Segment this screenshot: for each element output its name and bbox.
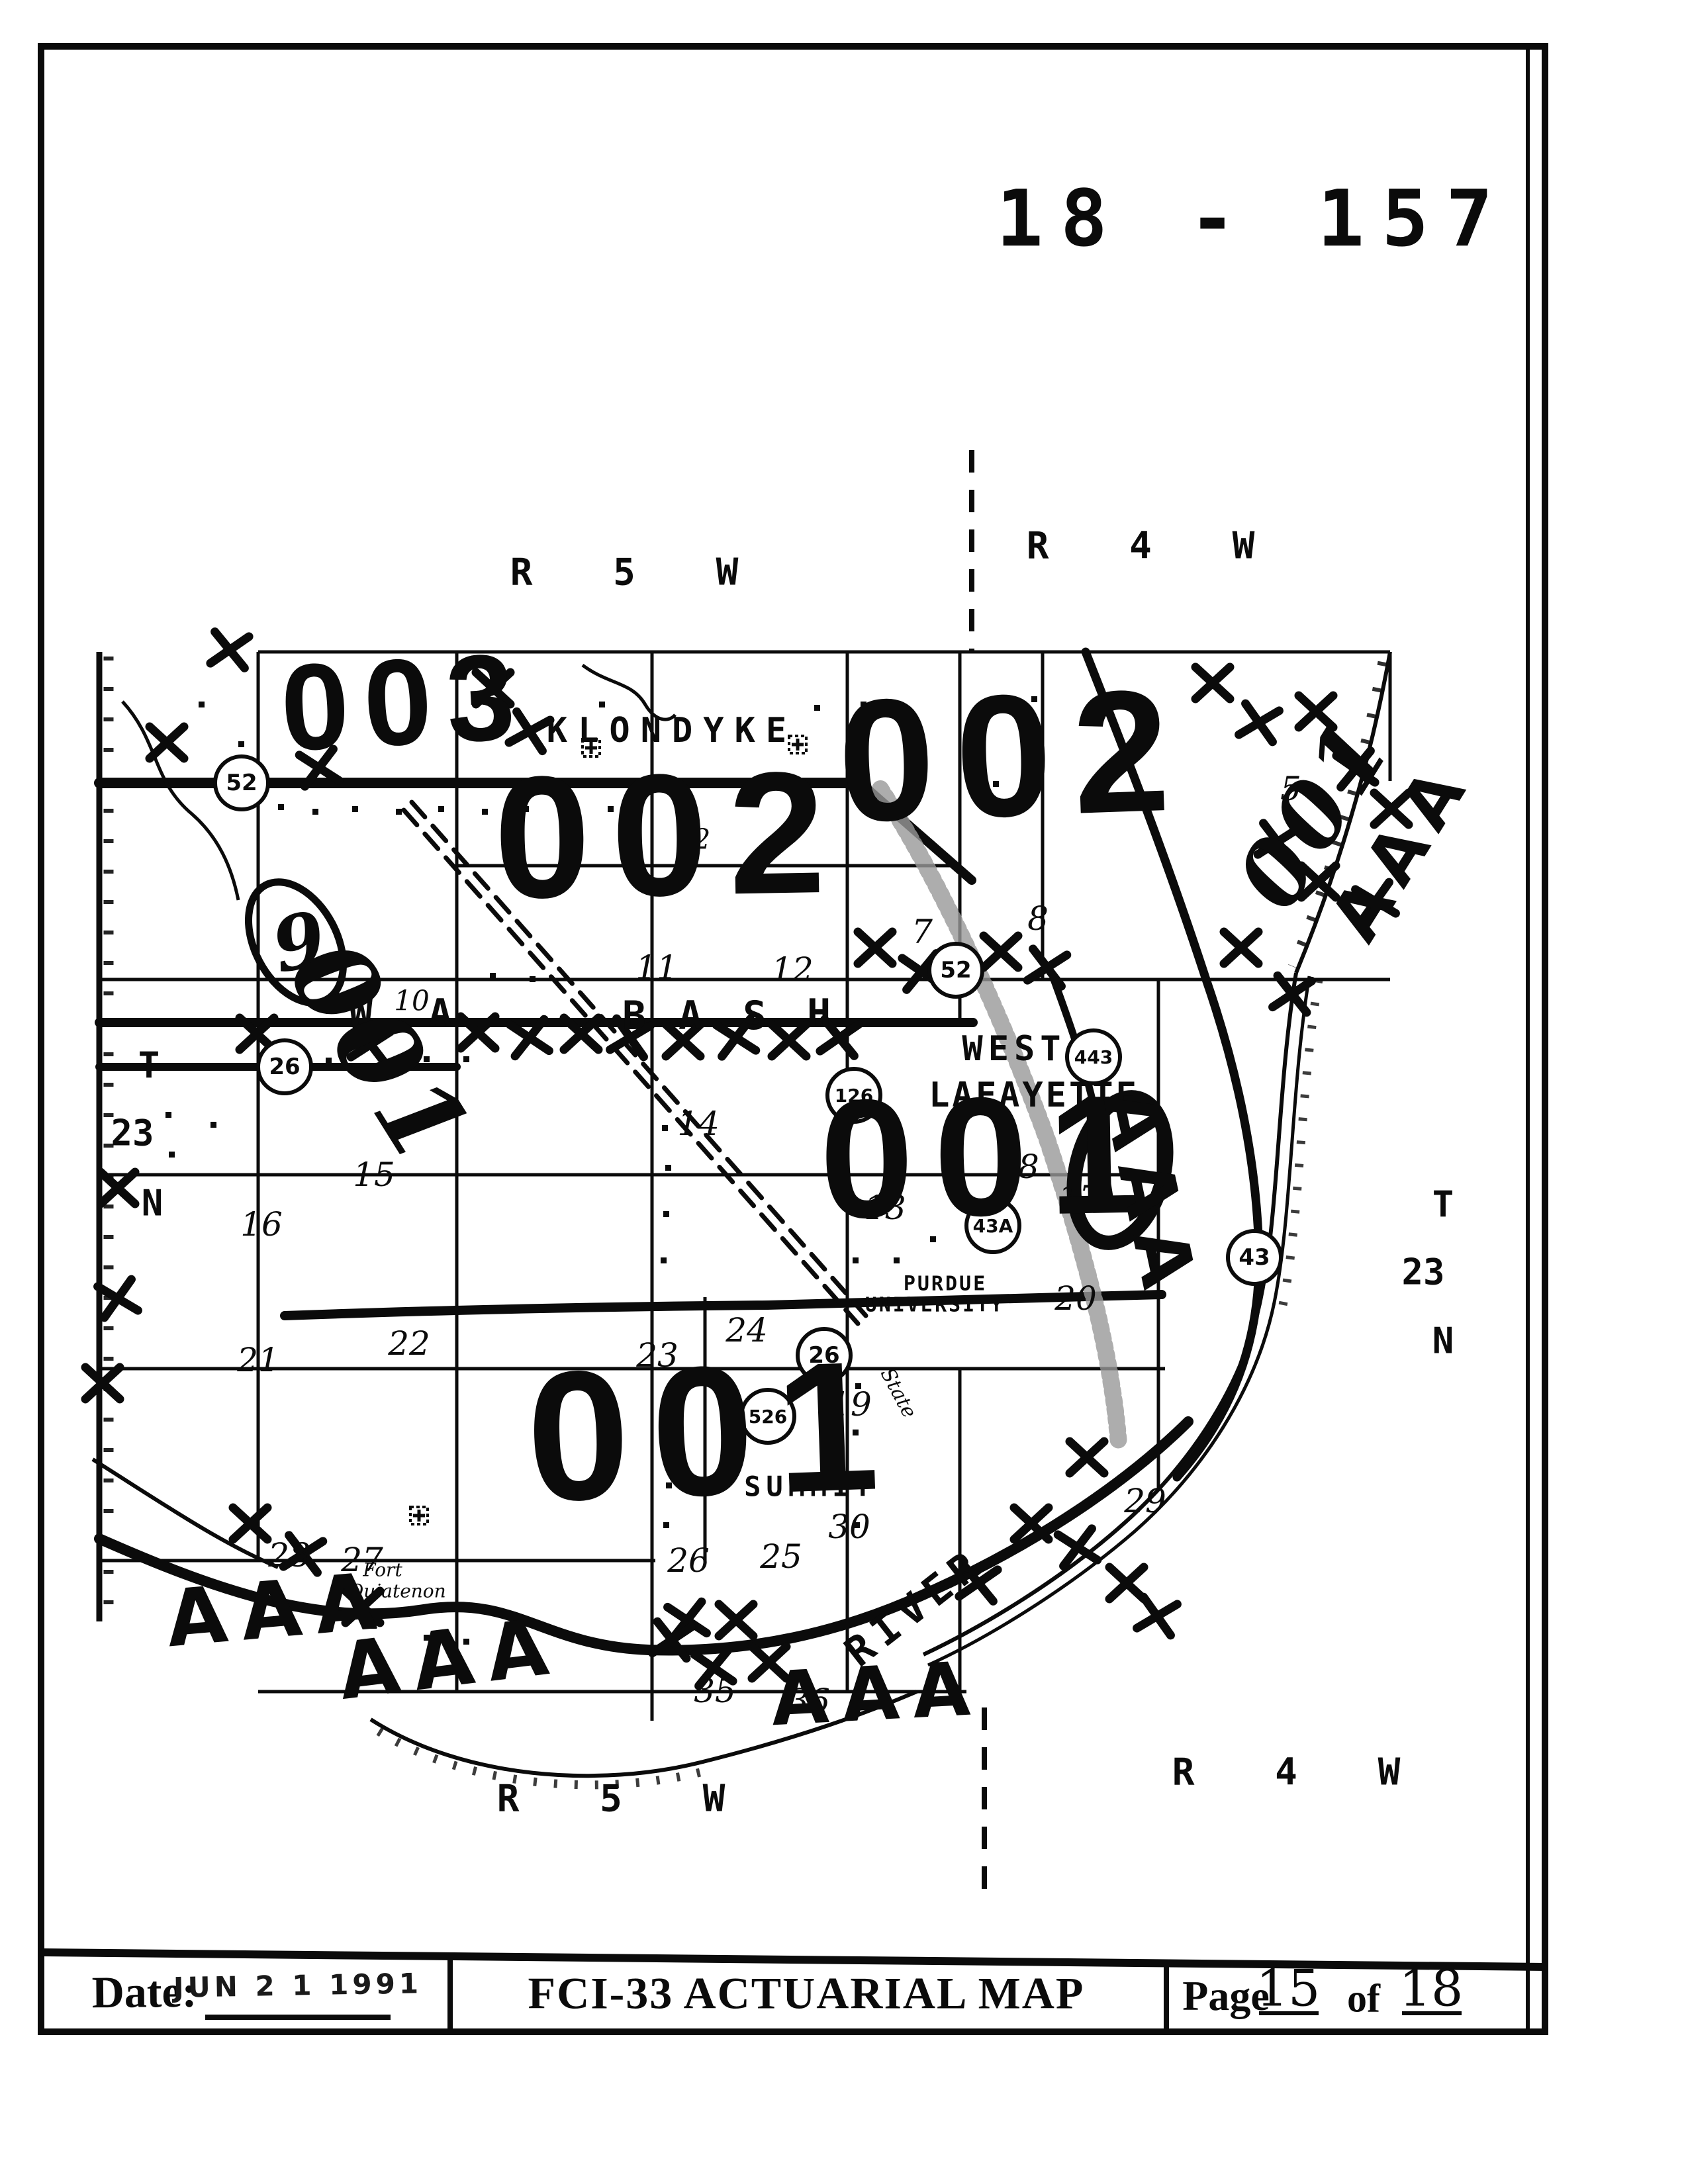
place-purdue: PURDUE <box>904 1273 987 1296</box>
place-university: UNIVERSITY <box>865 1294 1005 1317</box>
section-26: 26 <box>667 1541 710 1580</box>
township-left-t: T <box>138 1045 160 1087</box>
section-22: 22 <box>388 1324 430 1363</box>
section-20: 20 <box>1054 1279 1097 1318</box>
footer-title: FCI-33 ACTUARIAL MAP <box>528 1968 1085 2020</box>
route-shield-label: 43 <box>1239 1244 1270 1271</box>
section-12: 12 <box>771 950 814 989</box>
section-16: 16 <box>240 1205 283 1244</box>
actuarial-map-sheet: 18 - 157 R 5 W R 4 W R 5 W R 4 W T 23 N … <box>0 0 1684 2184</box>
township-right-n: N <box>1432 1320 1454 1362</box>
footer-date-stamp: JUN 2 1 1991 <box>173 1967 423 2004</box>
wabash-letter-a2: A <box>678 993 702 1039</box>
range-label-bottom-right: R 4 W <box>1172 1751 1430 1794</box>
wabash-letter-h: H <box>807 991 831 1037</box>
range-label-top-right: R 4 W <box>1027 525 1284 568</box>
section-29: 29 <box>1124 1482 1166 1520</box>
route-shield-label: 52 <box>226 770 257 796</box>
range-label-bottom-left: R 5 W <box>497 1778 755 1821</box>
wabash-letter-s: S <box>743 993 767 1039</box>
route-shield-label: 52 <box>940 957 971 983</box>
zone-stamp-002-northeast: 002 <box>835 663 1193 848</box>
township-left-23: 23 <box>111 1113 154 1154</box>
section-35: 35 <box>694 1672 736 1710</box>
footer-page-number: 15 <box>1256 1959 1321 2018</box>
range-label-top-left: R 5 W <box>510 551 768 594</box>
township-right-t: T <box>1432 1184 1454 1226</box>
section-7: 7 <box>912 913 933 951</box>
route-shield-sr43: 43 <box>1226 1229 1283 1286</box>
section-21: 21 <box>237 1341 279 1379</box>
section-8: 8 <box>1027 899 1049 938</box>
footer-total-pages: 18 <box>1399 1959 1464 2018</box>
section-25: 25 <box>760 1537 802 1576</box>
route-shield-us52-west: 52 <box>213 754 270 811</box>
section-11: 11 <box>635 948 678 987</box>
footer-of-label: of <box>1347 1976 1380 2022</box>
hand-aaa-southeast: AAA <box>769 1646 986 1743</box>
zone-stamp-001-south: 001 <box>524 1332 903 1529</box>
section-14: 14 <box>677 1105 720 1143</box>
route-shield-us52-east: 52 <box>927 942 984 999</box>
township-left-n: N <box>142 1183 164 1224</box>
route-shield-label: 26 <box>269 1054 300 1080</box>
wabash-letter-b: B <box>622 993 646 1039</box>
township-right-23: 23 <box>1401 1251 1444 1293</box>
map-number: 18 - 157 <box>996 173 1510 264</box>
zone-stamp-002-center: 002 <box>492 745 847 925</box>
